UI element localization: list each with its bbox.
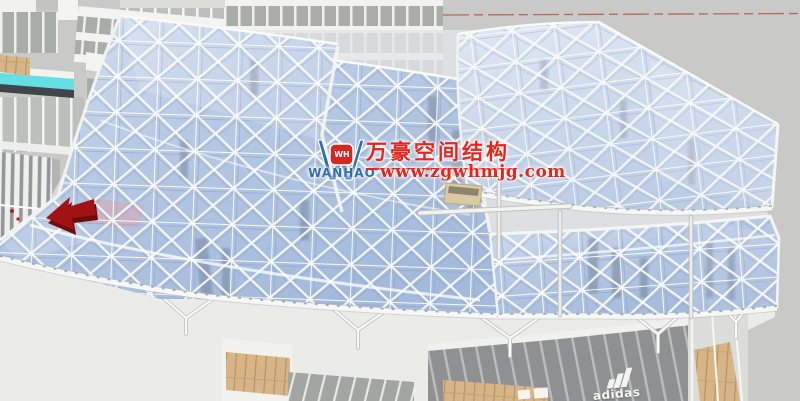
skylight-opening xyxy=(444,183,482,206)
scene-render xyxy=(0,0,800,401)
sketchup-3d-viewport[interactable]: WH WANHAO 万豪空间结构 www.zgwhmjg.com adidas xyxy=(0,0,800,401)
canopy-bottom-right xyxy=(490,216,779,316)
